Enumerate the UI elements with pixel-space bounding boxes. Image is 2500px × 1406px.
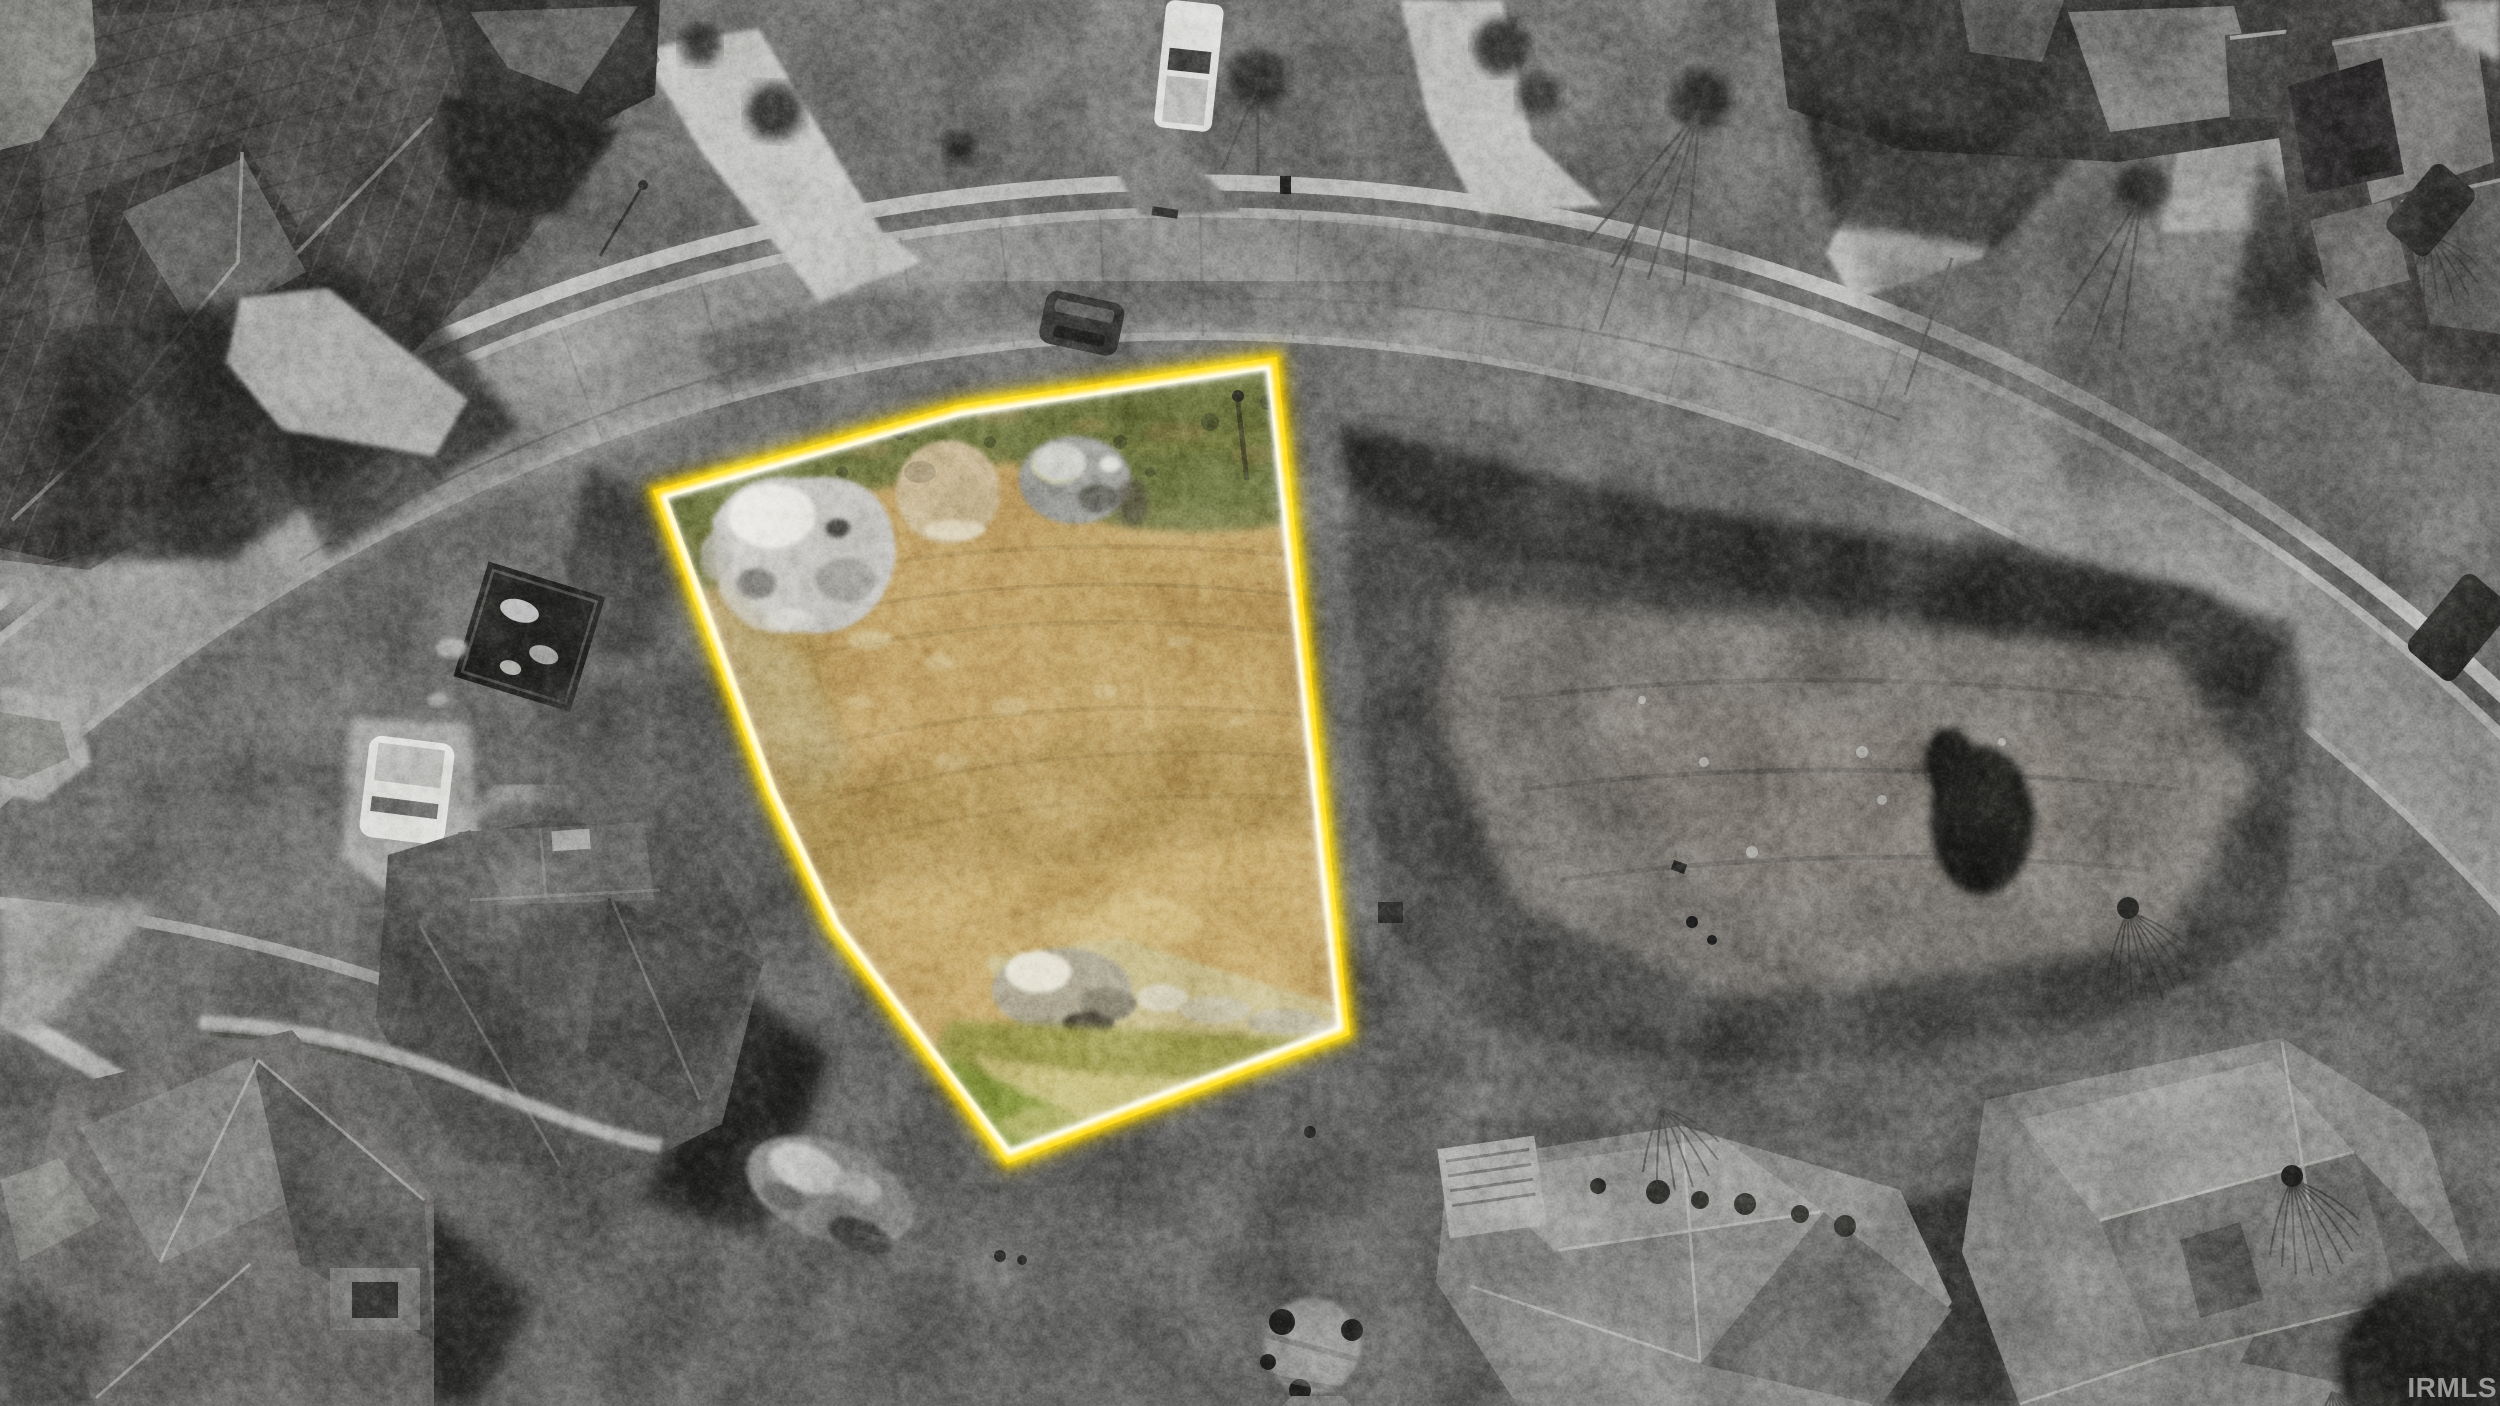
svg-text:IRMLS: IRMLS bbox=[2407, 1372, 2497, 1403]
